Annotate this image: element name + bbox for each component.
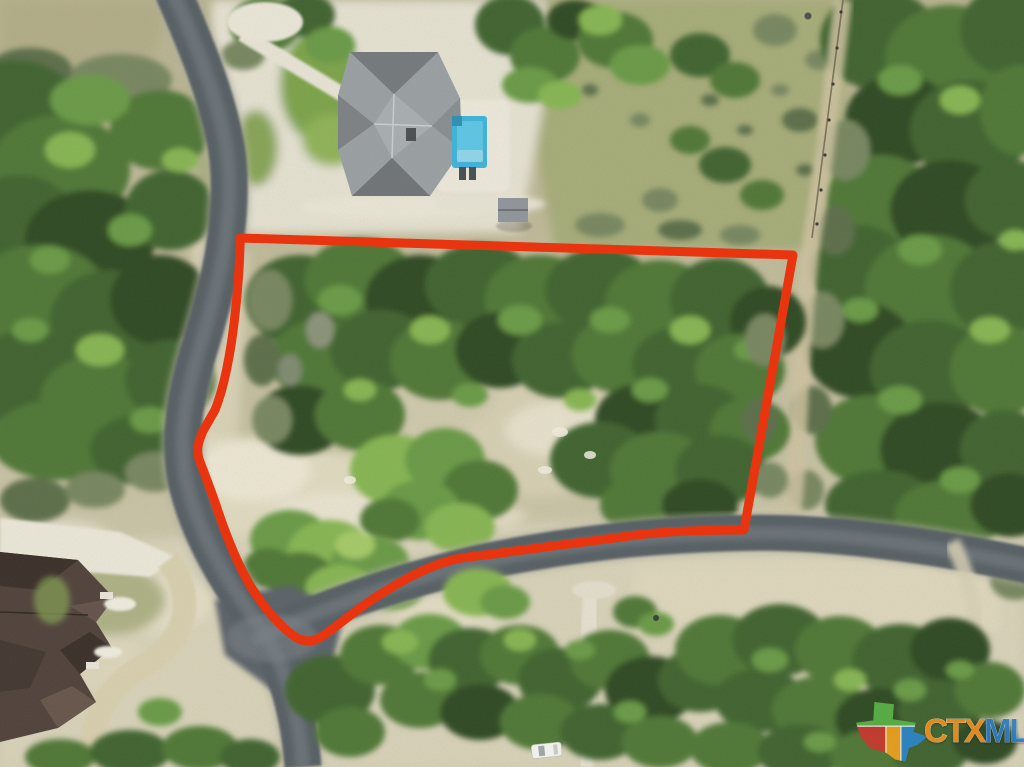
- photo-grain-light: [0, 0, 1024, 767]
- watermark-ctx: CTX: [924, 712, 986, 749]
- watermark-mls: MLS: [984, 712, 1024, 749]
- ctxmls-watermark-text: CTXMLS: [924, 712, 1024, 749]
- aerial-photo: CTXMLS: [0, 0, 1024, 767]
